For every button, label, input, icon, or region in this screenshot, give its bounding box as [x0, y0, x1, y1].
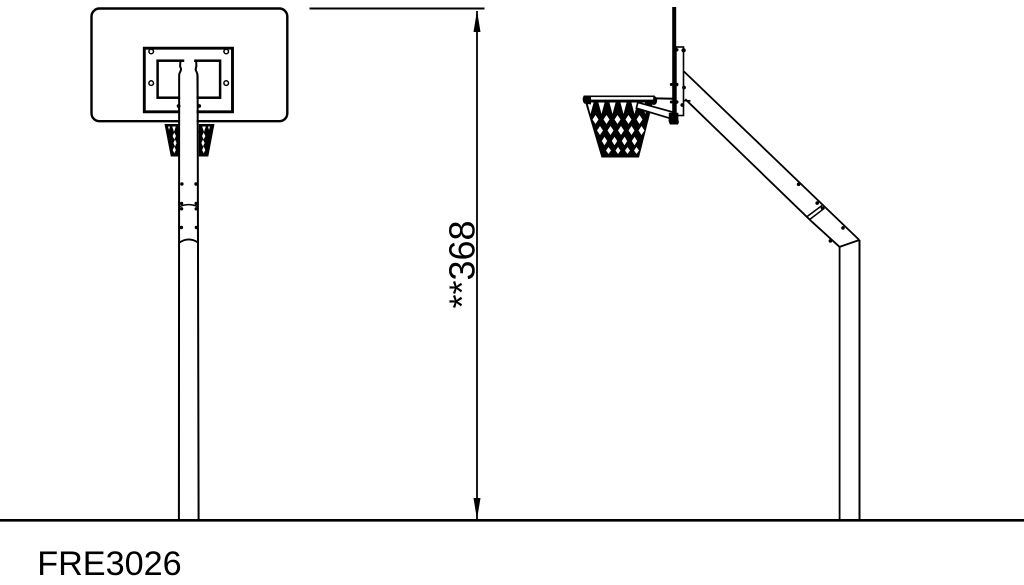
svg-text:**368: **368	[442, 220, 483, 308]
svg-text:FRE3026: FRE3026	[37, 545, 181, 583]
